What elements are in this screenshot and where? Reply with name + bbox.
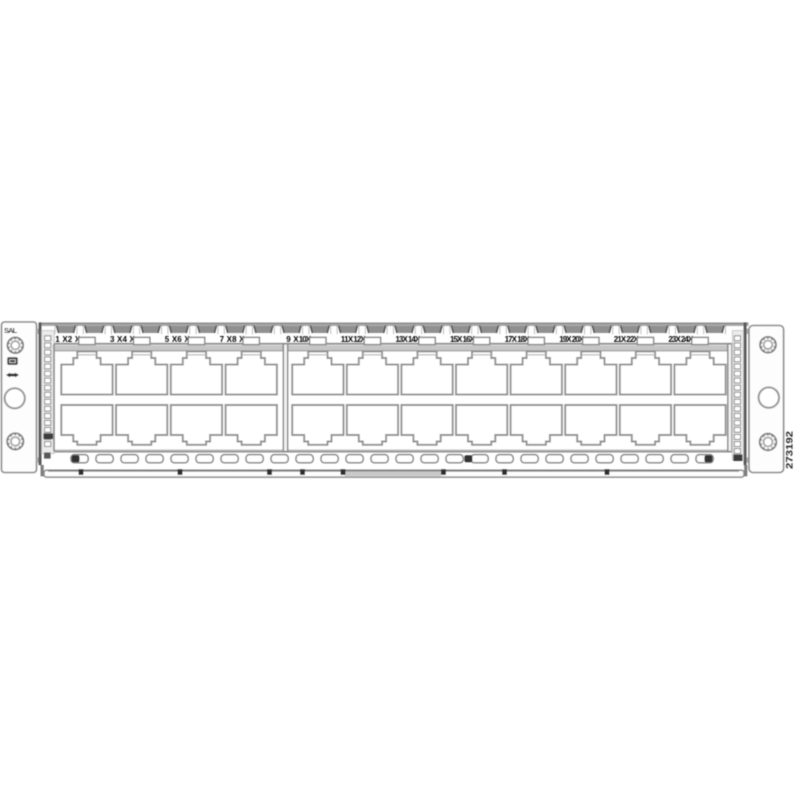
svg-text:21X: 21X — [614, 335, 627, 344]
svg-text:11X: 11X — [341, 335, 354, 344]
svg-text:273192: 273192 — [785, 431, 795, 469]
svg-text:1X: 1X — [55, 335, 68, 344]
svg-text:9X: 9X — [286, 335, 299, 344]
svg-text:SAL: SAL — [4, 326, 18, 335]
svg-text:17X: 17X — [505, 335, 518, 344]
svg-text:13X: 13X — [395, 335, 408, 344]
svg-text:19X: 19X — [559, 335, 572, 344]
svg-text:15X: 15X — [450, 335, 463, 344]
svg-text:23X: 23X — [668, 335, 681, 344]
svg-text:3X: 3X — [110, 335, 123, 344]
svg-text:7X: 7X — [220, 335, 233, 344]
svg-text:5X: 5X — [165, 335, 178, 344]
